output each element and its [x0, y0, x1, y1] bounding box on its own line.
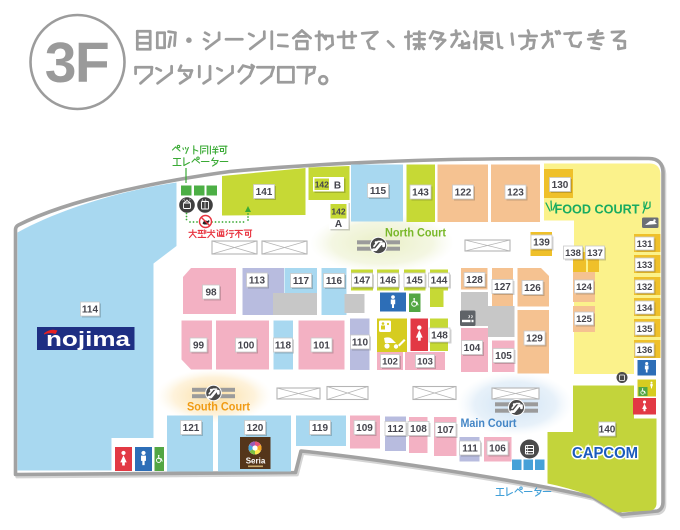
svg-text:99: 99: [193, 341, 205, 352]
svg-text:114: 114: [82, 305, 99, 316]
svg-text:North Court: North Court: [385, 228, 446, 240]
svg-text:132: 132: [637, 282, 653, 293]
svg-text:130: 130: [552, 180, 569, 191]
svg-text:125: 125: [576, 314, 593, 325]
svg-text:107: 107: [437, 425, 454, 436]
svg-text:142: 142: [315, 180, 329, 190]
svg-text:123: 123: [507, 188, 524, 199]
svg-text:98: 98: [205, 288, 217, 299]
svg-text:122: 122: [455, 188, 472, 199]
svg-text:131: 131: [637, 239, 654, 250]
svg-text:113: 113: [249, 276, 266, 287]
svg-text:134: 134: [637, 303, 654, 314]
svg-text:138: 138: [565, 248, 581, 259]
svg-text:127: 127: [494, 282, 511, 293]
svg-text:144: 144: [431, 276, 448, 287]
svg-text:137: 137: [587, 248, 603, 259]
svg-text:103: 103: [417, 356, 433, 367]
svg-text:117: 117: [293, 276, 310, 287]
svg-text:145: 145: [406, 276, 423, 287]
svg-text:128: 128: [466, 275, 483, 286]
svg-text:102: 102: [382, 356, 398, 367]
svg-text:136: 136: [637, 345, 653, 356]
svg-text:124: 124: [576, 282, 593, 293]
svg-text:ペット: ペット: [182, 198, 192, 202]
svg-text:147: 147: [354, 276, 371, 287]
svg-text:142: 142: [331, 207, 345, 217]
svg-text:FOOD COURT: FOOD COURT: [555, 203, 640, 217]
svg-text:106: 106: [489, 444, 506, 455]
svg-text:121: 121: [183, 423, 200, 434]
svg-text:141: 141: [256, 187, 273, 198]
svg-text:110: 110: [352, 338, 369, 349]
svg-text:108: 108: [410, 424, 427, 435]
svg-text:129: 129: [526, 334, 543, 345]
svg-text:119: 119: [312, 423, 329, 434]
svg-text:Main Court: Main Court: [461, 416, 517, 430]
svg-text:133: 133: [637, 260, 653, 271]
svg-text:112: 112: [387, 424, 404, 435]
svg-text:120: 120: [247, 423, 264, 434]
svg-text:146: 146: [380, 276, 397, 287]
svg-text:104: 104: [464, 343, 481, 354]
svg-text:109: 109: [356, 423, 373, 434]
svg-text:A: A: [335, 219, 342, 230]
svg-text:148: 148: [431, 331, 448, 342]
svg-text:B: B: [334, 181, 341, 192]
svg-text:118: 118: [275, 341, 292, 352]
svg-text:3F: 3F: [45, 31, 109, 95]
svg-text:Seria: Seria: [246, 457, 266, 466]
svg-text:111: 111: [462, 444, 478, 455]
svg-text:135: 135: [637, 324, 654, 335]
svg-text:140: 140: [599, 425, 616, 436]
svg-text:CAPCOM: CAPCOM: [572, 445, 638, 462]
svg-text:116: 116: [326, 276, 343, 287]
svg-text:126: 126: [524, 283, 541, 294]
svg-text:nojima: nojima: [46, 329, 131, 351]
svg-text:South Court: South Court: [187, 400, 250, 414]
svg-text:143: 143: [412, 188, 429, 199]
svg-text:105: 105: [495, 351, 512, 362]
svg-text:115: 115: [370, 186, 387, 197]
svg-text:101: 101: [313, 341, 330, 352]
svg-text:100: 100: [238, 341, 255, 352]
svg-text:139: 139: [533, 238, 550, 249]
